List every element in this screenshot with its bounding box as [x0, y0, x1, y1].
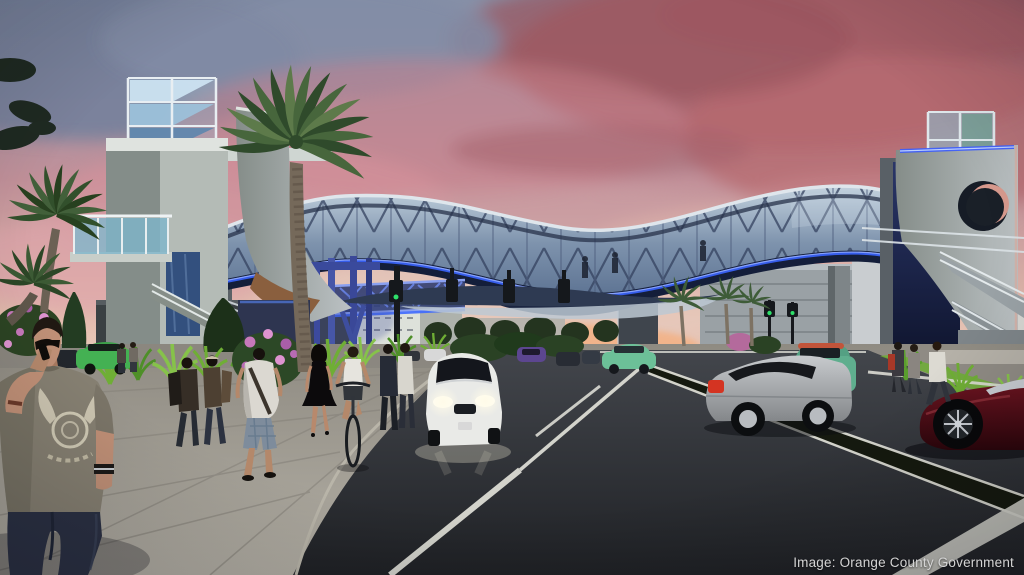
rendering-canvas: Image: Orange County Government	[0, 0, 1024, 575]
image-credit: Image: Orange County Government	[793, 555, 1014, 570]
vignette	[0, 0, 1024, 575]
